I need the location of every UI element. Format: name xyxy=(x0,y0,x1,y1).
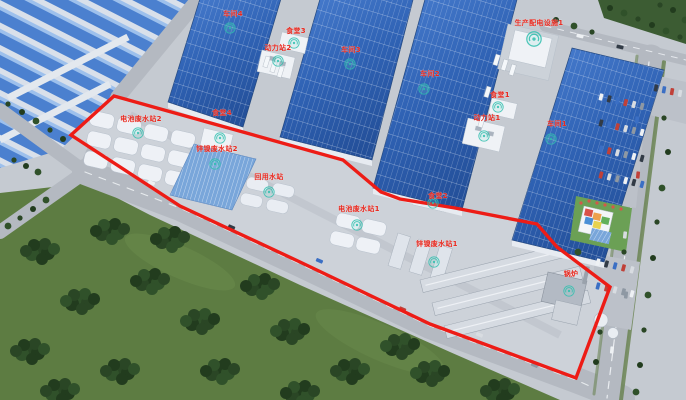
tree-icon xyxy=(607,5,613,11)
tree-cluster xyxy=(118,223,130,235)
logo-watermark-icon xyxy=(264,187,274,197)
tree-cluster xyxy=(20,245,32,257)
label-battery-wastewater-1: 电池废水站1 xyxy=(338,204,380,213)
tree-cluster xyxy=(128,363,140,375)
label-workshop-4: 车间4 xyxy=(223,9,243,18)
tree-icon xyxy=(43,197,50,204)
tree-cluster xyxy=(208,313,220,325)
label-workshop-3: 车间3 xyxy=(341,45,361,54)
tree-icon xyxy=(11,157,16,162)
tree-cluster xyxy=(408,338,420,350)
tree-cluster xyxy=(298,323,310,335)
tree-cluster xyxy=(196,323,208,335)
tree-cluster xyxy=(216,373,228,385)
tree-cluster xyxy=(68,383,80,395)
tree-icon xyxy=(47,127,52,132)
tree-cluster xyxy=(308,385,320,397)
tree-cluster xyxy=(88,293,100,305)
tree-cluster xyxy=(40,385,52,397)
label-canteen-4: 食堂4 xyxy=(211,108,232,117)
car-icon xyxy=(636,171,640,178)
tree-icon xyxy=(33,118,40,125)
tree-icon xyxy=(23,163,29,169)
tree-icon xyxy=(19,109,25,115)
tree-icon xyxy=(5,223,12,230)
car-icon xyxy=(635,116,639,123)
tree-cluster xyxy=(48,243,60,255)
label-zinc-nickel-wastewater-2: 锌镍废水站2 xyxy=(196,144,238,153)
label-boiler-house: 锅炉 xyxy=(563,269,579,278)
label-battery-wastewater-2: 电池废水站2 xyxy=(120,114,162,123)
tree-cluster xyxy=(10,345,22,357)
tree-cluster xyxy=(26,353,38,365)
tree-cluster xyxy=(286,333,298,345)
tree-icon xyxy=(621,249,626,254)
tree-cluster xyxy=(426,375,438,387)
logo-watermark-icon xyxy=(546,134,556,144)
tree-cluster xyxy=(508,383,520,395)
tree-cluster xyxy=(178,231,190,243)
tree-cluster xyxy=(100,365,112,377)
tree-cluster xyxy=(480,385,492,397)
tree-icon xyxy=(633,389,640,396)
tree-icon xyxy=(661,115,666,120)
tree-cluster xyxy=(380,340,392,352)
tree-cluster xyxy=(106,233,118,245)
aerial-site-rendering: 车间4 食堂3 动力站2 车间3 生产配电设施1 车间2 食堂1 动力站1 车间… xyxy=(0,0,686,400)
logo-watermark-icon xyxy=(429,257,439,267)
tree-icon xyxy=(571,23,578,30)
tree-icon xyxy=(665,149,671,155)
car-icon xyxy=(623,231,627,238)
tree-icon xyxy=(641,327,646,332)
tree-cluster xyxy=(268,278,280,290)
label-canteen-2: 食堂2 xyxy=(427,191,448,200)
label-workshop-1: 车间1 xyxy=(547,119,567,128)
logo-watermark-icon xyxy=(345,59,355,69)
tree-cluster xyxy=(90,225,102,237)
tree-cluster xyxy=(166,241,178,253)
tree-cluster xyxy=(438,365,450,377)
tree-cluster xyxy=(150,233,162,245)
tree-icon xyxy=(589,29,594,34)
site-plan-canvas: 车间4 食堂3 动力站2 车间3 生产配电设施1 车间2 食堂1 动力站1 车间… xyxy=(0,0,686,400)
logo-watermark-icon xyxy=(273,56,283,66)
tree-icon xyxy=(637,362,643,368)
tree-cluster xyxy=(358,363,370,375)
label-production-power-facility-1: 生产配电设施1 xyxy=(515,18,564,27)
logo-watermark-icon xyxy=(493,102,503,112)
label-canteen-1: 食堂1 xyxy=(489,90,510,99)
silo-tank xyxy=(608,328,619,339)
logo-watermark-icon xyxy=(564,286,574,296)
tree-cluster xyxy=(158,273,170,285)
tree-cluster xyxy=(60,295,72,307)
tree-icon xyxy=(621,10,628,17)
tree-icon xyxy=(35,169,42,176)
tree-icon xyxy=(657,2,662,7)
tree-cluster xyxy=(346,373,358,385)
label-power-station-1: 动力站1 xyxy=(473,113,500,122)
tree-cluster xyxy=(330,365,342,377)
tree-icon xyxy=(635,16,640,21)
tree-cluster xyxy=(200,365,212,377)
logo-watermark-icon xyxy=(479,131,489,141)
label-power-station-2: 动力站2 xyxy=(264,43,291,52)
tree-cluster xyxy=(146,283,158,295)
logo-watermark-icon xyxy=(210,159,220,169)
tree-cluster xyxy=(76,303,88,315)
logo-watermark-icon xyxy=(133,128,143,138)
helipad-logo-icon xyxy=(527,32,541,46)
tree-icon xyxy=(575,249,582,256)
tree-icon xyxy=(17,215,22,220)
tree-icon xyxy=(30,206,36,212)
tree-cluster xyxy=(180,315,192,327)
tree-cluster xyxy=(396,348,408,360)
tree-cluster xyxy=(256,288,268,300)
tree-icon xyxy=(649,22,655,28)
tree-icon xyxy=(663,28,670,35)
label-water-reuse-station: 回用水站 xyxy=(254,172,283,181)
tree-icon xyxy=(597,329,602,334)
logo-watermark-icon xyxy=(225,23,235,33)
tree-cluster xyxy=(410,367,422,379)
tree-icon xyxy=(670,7,676,13)
tree-cluster xyxy=(228,363,240,375)
tree-cluster xyxy=(116,373,128,385)
tree-icon xyxy=(677,34,682,39)
label-canteen-3: 食堂3 xyxy=(285,26,306,35)
tree-icon xyxy=(654,219,659,224)
logo-watermark-icon xyxy=(215,133,225,143)
logo-watermark-icon xyxy=(352,220,362,230)
logo-watermark-icon xyxy=(419,84,429,94)
tree-icon xyxy=(650,255,656,261)
tree-cluster xyxy=(130,275,142,287)
tree-cluster xyxy=(280,387,292,399)
tree-icon xyxy=(5,101,10,106)
label-zinc-nickel-wastewater-1: 锌镍废水站1 xyxy=(416,239,458,248)
tree-cluster xyxy=(36,253,48,265)
tree-cluster xyxy=(240,280,252,292)
tree-icon xyxy=(593,359,599,365)
tree-icon xyxy=(659,185,666,192)
tree-cluster xyxy=(38,343,50,355)
tree-icon xyxy=(645,292,652,299)
tree-cluster xyxy=(270,325,282,337)
car-icon xyxy=(610,346,614,353)
tree-icon xyxy=(60,136,66,142)
label-workshop-2: 车间2 xyxy=(420,69,440,78)
